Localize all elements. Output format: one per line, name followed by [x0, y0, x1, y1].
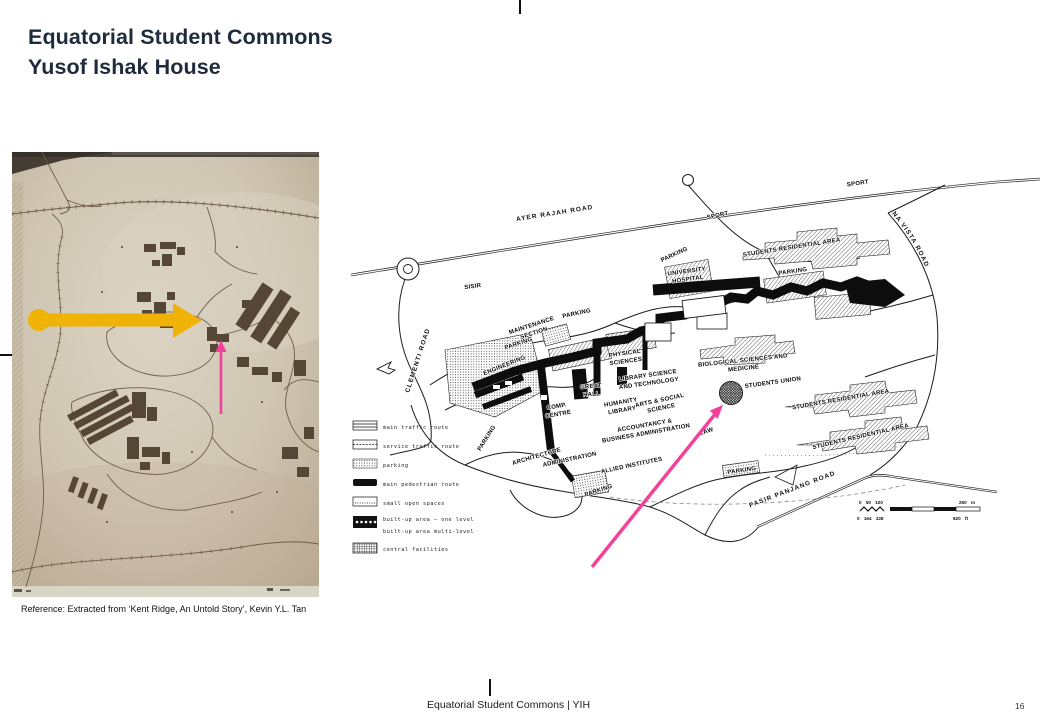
svg-text:parking: parking: [383, 463, 408, 469]
reference-caption: Reference: Extracted from ‘Kent Ridge, A…: [21, 604, 351, 614]
svg-text:main traffic route: main traffic route: [383, 425, 449, 431]
scale-metric-ticks: 0 50 100: [859, 500, 883, 505]
campus-plan-map: AYER RAJAH ROAD SISIR CLEMENTI ROAD SPOR…: [345, 155, 1040, 590]
kent-ridge-scanned-map: [12, 152, 319, 597]
svg-text:small open spaces: small open spaces: [383, 501, 445, 507]
presentation-slide: Equatorial Student Commons Yusof Ishak H…: [0, 0, 1040, 720]
svg-text:built-up area – one level: built-up area – one level: [383, 517, 474, 523]
footer-guide-mark: [489, 679, 491, 696]
footer-title: Equatorial Student Commons | YIH: [427, 699, 590, 711]
scale-imperial-end: 820 ft: [953, 516, 968, 521]
page-title: Equatorial Student Commons Yusof Ishak H…: [28, 22, 333, 82]
students-union-marker: [720, 382, 743, 405]
left-map-figure: [12, 152, 319, 597]
svg-text:central facilities: central facilities: [383, 547, 449, 553]
title-line-2: Yusof Ishak House: [28, 52, 333, 82]
scale-metric-end: 250 m: [959, 500, 975, 505]
top-guide-mark: [519, 0, 521, 14]
right-map-figure: AYER RAJAH ROAD SISIR CLEMENTI ROAD SPOR…: [345, 155, 1040, 590]
scale-imperial-ticks: 0 164 328: [857, 516, 884, 521]
svg-text:built-up area multi-level: built-up area multi-level: [383, 529, 474, 535]
page-number: 16: [1015, 701, 1024, 711]
svg-text:main pedestrian route: main pedestrian route: [383, 482, 459, 488]
title-line-1: Equatorial Student Commons: [28, 22, 333, 52]
yellow-arrow-shaft: [37, 314, 177, 327]
svg-text:service traffic route: service traffic route: [383, 444, 459, 450]
